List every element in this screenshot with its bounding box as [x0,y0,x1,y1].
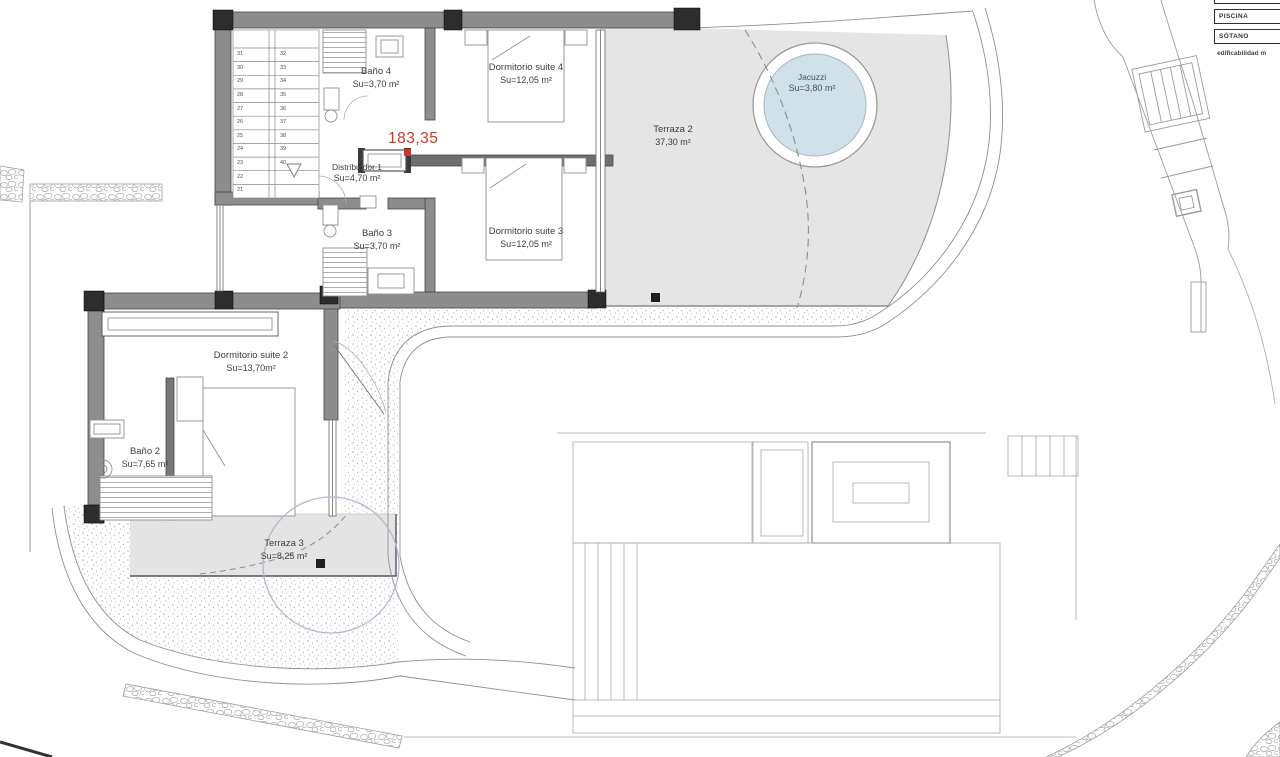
floor-plan-canvas [0,0,1280,757]
stair-step-number: 30 [237,66,243,72]
jacuzzi-circle [753,43,877,167]
room-label-bano3: Baño 3 Su=3,70 m² [354,228,401,252]
room-name: Dormitorio suite 3 [489,226,563,239]
stair-step-number: 25 [237,134,243,140]
room-area: Su=3,80 m² [789,83,836,95]
room-area: Su=3,70 m² [354,241,401,253]
room-area: Su=3,70 m² [353,79,400,91]
stair-step-number: 26 [237,120,243,126]
stair-step-number: 40 [280,161,286,167]
room-area: Su=13,70m² [214,363,288,375]
path-square [1172,190,1201,217]
room-name: Baño 3 [354,228,401,241]
room-label-distribuidor1: Distribuidor 1 Su=4,70 m² [332,162,382,185]
stair-step-number: 27 [237,107,243,113]
legend-note: edificabilidad m [1217,50,1266,57]
room-name: Distribuidor 1 [332,162,382,173]
room-area: Su=8,25 m² [261,551,308,563]
room-name: Dormitorio suite 4 [489,62,563,75]
room-area: 37,30 m² [653,137,693,149]
stair-step-number: 31 [237,52,243,58]
stair-step-number: 34 [280,79,286,85]
room-label-terraza2: Terraza 2 37,30 m² [653,124,693,148]
legend-box-sotano: SÓTANO [1214,29,1280,44]
staircase [233,30,319,198]
stair-step-number: 39 [280,147,286,153]
stair-step-number: 38 [280,134,286,140]
room-label-jacuzzi: Jacuzzi Su=3,80 m² [789,72,836,95]
stair-step-number: 24 [237,147,243,153]
garden-path-upper-right [1094,0,1275,404]
room-name: Terraza 2 [653,124,693,137]
room-area: Su=12,05 m² [489,239,563,251]
legend-box-piscina: PISCINA [1214,9,1280,24]
stair-step-number: 28 [237,93,243,99]
stair-step-number: 36 [280,107,286,113]
legend-box-top [1214,0,1280,4]
exterior-steps [1132,56,1210,132]
stair-step-number: 35 [280,93,286,99]
room-label-dorm2: Dormitorio suite 2 Su=13,70m² [214,350,288,374]
stair-step-number: 21 [237,188,243,194]
room-name: Dormitorio suite 2 [214,350,288,363]
stair-step-number: 33 [280,66,286,72]
room-area: Su=12,05 m² [489,75,563,87]
stair-step-number: 23 [237,161,243,167]
room-label-bano2: Baño 2 Su=7,65 m² [122,446,169,470]
elevation-measurement: 183,35 [388,130,438,148]
room-name: Baño 4 [353,66,400,79]
room-name: Jacuzzi [789,72,836,83]
stair-step-number: 32 [280,52,286,58]
stair-step-number: 29 [237,79,243,85]
room-label-dorm4: Dormitorio suite 4 Su=12,05 m² [489,62,563,86]
room-name: Terraza 3 [261,538,308,551]
room-name: Baño 2 [122,446,169,459]
room-area: Su=7,65 m² [122,459,169,471]
stair-step-number: 22 [237,175,243,181]
pool-below-lines [404,433,1078,737]
room-label-dorm3: Dormitorio suite 3 Su=12,05 m² [489,226,563,250]
room-label-terraza3: Terraza 3 Su=8,25 m² [261,538,308,562]
floor-plan: Baño 4 Su=3,70 m² Dormitorio suite 4 Su=… [0,0,1280,757]
room-area: Su=4,70 m² [332,173,382,185]
stair-step-number: 37 [280,120,286,126]
room-label-bano4: Baño 4 Su=3,70 m² [353,66,400,90]
